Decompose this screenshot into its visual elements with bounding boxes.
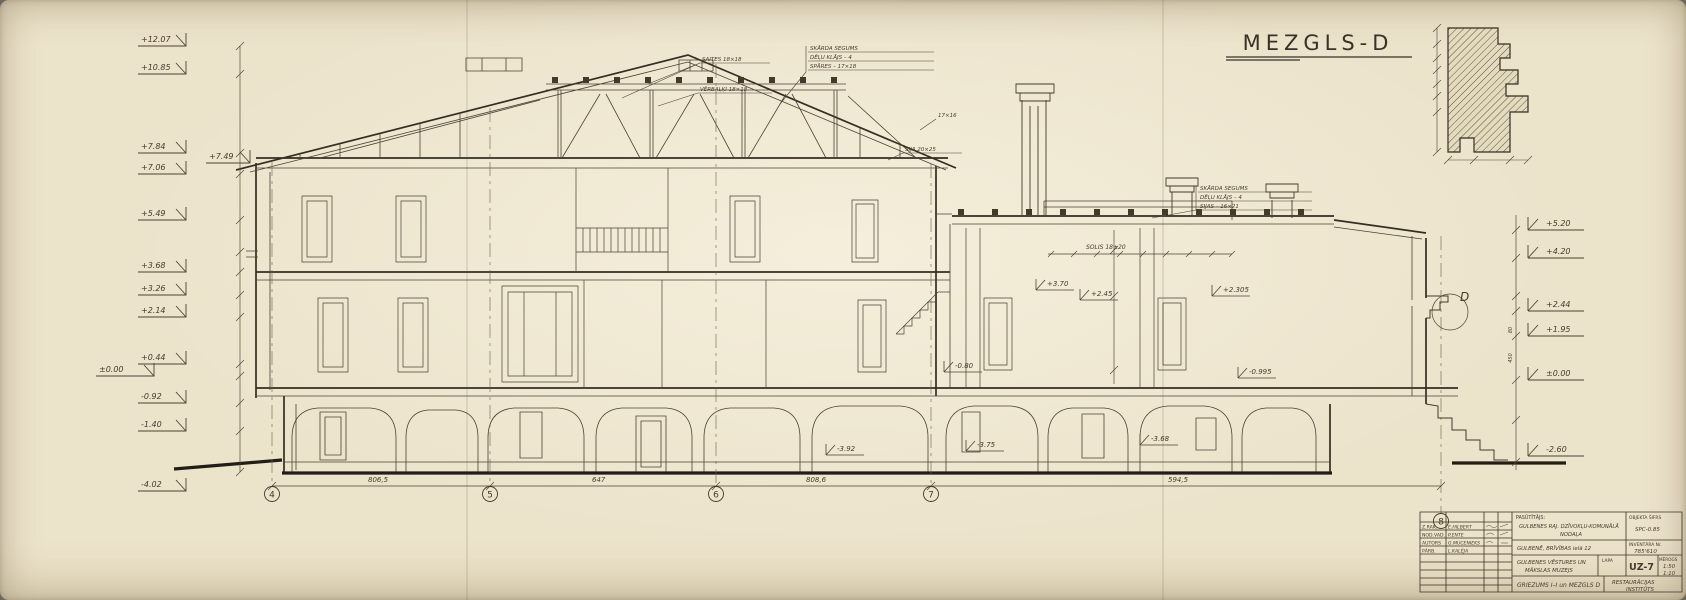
- axis-label-8: 8: [1438, 518, 1444, 528]
- legend-wing-line: SIJAS – 16×21: [1200, 204, 1239, 210]
- axis-grid-lines: [272, 64, 1441, 513]
- elevation-left: +10.85: [141, 63, 171, 72]
- titleblock-client: NODAĻA: [1560, 532, 1582, 538]
- axis-label-6: 6: [713, 491, 719, 501]
- detail-d-letter: D: [1460, 290, 1469, 304]
- building-lines-light: [246, 62, 1458, 470]
- elevation-left: +3.26: [141, 284, 166, 293]
- legend-top-line: DĒĻU KLĀJS – 4: [810, 54, 852, 61]
- elevation-left: +0.44: [141, 353, 166, 362]
- titleblock-org: RESTAURĀCIJAS: [1612, 579, 1655, 586]
- joist-spacing-note: SOLIS 18±20: [1086, 244, 1126, 251]
- elevation-interior: +3.70: [1047, 280, 1069, 288]
- titleblock-scale: 1:50: [1663, 564, 1676, 570]
- titleblock-client: GULBENES RAJ. DZĪVOKĻU-KOMUNĀLĀ: [1519, 523, 1619, 530]
- elevation-flags-left: [96, 33, 250, 491]
- titleblock-scale-label: MĒROGS: [1659, 557, 1678, 562]
- titleblock-object: GULBENES VĒSTURES UN: [1517, 559, 1586, 566]
- title-block: PASŪTĪTĀJS: GULBENES RAJ. DZĪVOKĻU-KOMUN…: [1420, 512, 1682, 593]
- titleblock-drawing-title: GRIEZUMS I–I un MEZGLS D: [1517, 582, 1601, 589]
- axis-bubbles: [265, 487, 1449, 529]
- titleblock-staff-name: G.MUCENIEKS: [1448, 541, 1480, 547]
- titleblock-inventory: 785'610: [1634, 549, 1657, 555]
- chimneys: [1016, 84, 1298, 218]
- elevation-interior: -3.75: [977, 441, 996, 449]
- elevation-right: +1.95: [1546, 325, 1571, 334]
- axis-label-7: 7: [928, 491, 934, 501]
- elevation-left: -1.40: [141, 420, 162, 429]
- detail-cornice-hatched: [1448, 28, 1528, 152]
- bottom-dimension: 808,6: [806, 476, 827, 484]
- titleblock-sheet-number: UZ-7: [1629, 562, 1654, 573]
- note-beam: SIJA 20×25: [905, 147, 936, 153]
- bottom-dimension: 594,5: [1168, 476, 1189, 484]
- building-outline-heavy: [236, 55, 1458, 474]
- titleblock-scale: 1:10: [1663, 571, 1676, 577]
- elevation-left: +7.06: [141, 163, 166, 172]
- titleblock-code-label: OBJEKTA ŠIFRS: [1629, 514, 1661, 521]
- elevation-interior: -3.68: [1151, 435, 1170, 443]
- axis-label-5: 5: [487, 491, 493, 501]
- elevation-right: +4.20: [1546, 247, 1571, 256]
- titleblock-staff-name: E.HILBERT: [1448, 525, 1473, 531]
- dimension-chains: [236, 42, 1520, 490]
- note-truss-tie: SAITES 18×18: [702, 57, 742, 63]
- elevation-left: -4.02: [141, 480, 162, 489]
- section-drawing: 4 5 6 7 8 MEZGLS-D D +12.07 +10.85 +7.84…: [0, 0, 1686, 600]
- sheet-title-underline: [1226, 57, 1412, 60]
- elevation-left: +12.07: [141, 35, 172, 44]
- note-rafter: 17×16: [938, 113, 957, 119]
- elevation-right: +5.20: [1546, 219, 1571, 228]
- note-leaders: [622, 46, 1312, 218]
- note-truss-collar: VĒRBAĻĶI 18×18: [700, 86, 748, 93]
- titleblock-staff-role: Z.RAK.: [1422, 525, 1437, 531]
- elevation-right: -2.60: [1546, 445, 1567, 454]
- elevation-interior: -0.80: [955, 362, 974, 370]
- elevation-left: +7.84: [141, 142, 166, 151]
- elevation-interior: +2.305: [1223, 286, 1249, 294]
- legend-wing-line: SKĀRDA SEGUMS: [1200, 185, 1248, 192]
- titleblock-address: GULBENĒ, BRĪVĪBAS ielā 12: [1517, 545, 1592, 552]
- legend-top-line: SPĀRES – 17×18: [810, 63, 857, 70]
- bottom-dimension: 647: [592, 476, 606, 484]
- elevation-interior: +2.45: [1091, 290, 1113, 298]
- titleblock-staff-name: L.KALĒJA: [1448, 548, 1468, 555]
- sheet-title: MEZGLS-D: [1243, 31, 1394, 55]
- titleblock-staff-name: P.ENTE: [1448, 533, 1464, 539]
- right-chain-dim: 450: [1508, 353, 1514, 363]
- titleblock-org: INSTITŪTS: [1626, 586, 1654, 593]
- titleblock-client-label: PASŪTĪTĀJS:: [1516, 514, 1545, 521]
- titleblock-staff-role: AUTORS: [1422, 541, 1441, 547]
- titleblock-sheet-label: LAPA: [1602, 558, 1613, 564]
- elevation-right: +2.44: [1546, 300, 1571, 309]
- bottom-dimension: 806,5: [368, 476, 389, 484]
- elevation-left: -0.92: [141, 392, 162, 401]
- scanned-blueprint-sheet: 4 5 6 7 8 MEZGLS-D D +12.07 +10.85 +7.84…: [0, 0, 1686, 600]
- elevation-left: +7.49: [209, 152, 234, 161]
- elevation-left: +3.68: [141, 261, 166, 270]
- legend-top-line: SKĀRDA SEGUMS: [810, 45, 858, 52]
- roof-truss: [300, 58, 916, 158]
- elevation-flags-interior: [826, 279, 1276, 455]
- elevation-right: ±0.00: [1546, 369, 1571, 378]
- titleblock-code: SPC-0.85: [1635, 527, 1660, 533]
- elevation-interior: -3.92: [837, 445, 856, 453]
- elevation-left: ±0.00: [99, 365, 124, 374]
- titleblock-object: MĀKSLAS MUZEJS: [1525, 567, 1573, 574]
- legend-wing-line: DĒĻU KLĀJS – 4: [1200, 194, 1242, 201]
- signature-scribbles: [1486, 524, 1508, 543]
- titleblock-inventory-label: INVENTĀRA Nr.: [1629, 541, 1662, 548]
- elevation-left: +2.14: [141, 306, 166, 315]
- right-chain-dim: 80: [1508, 327, 1514, 333]
- titleblock-staff-role: PĀRB.: [1422, 548, 1436, 555]
- axis-label-4: 4: [269, 491, 275, 501]
- elevation-interior: -0.995: [1249, 368, 1272, 376]
- right-cornice-and-stair: [1426, 296, 1508, 460]
- joist-squares: [552, 77, 1304, 215]
- elevation-left: +5.49: [141, 209, 166, 218]
- titleblock-staff-role: NOD.VAD.: [1422, 533, 1445, 539]
